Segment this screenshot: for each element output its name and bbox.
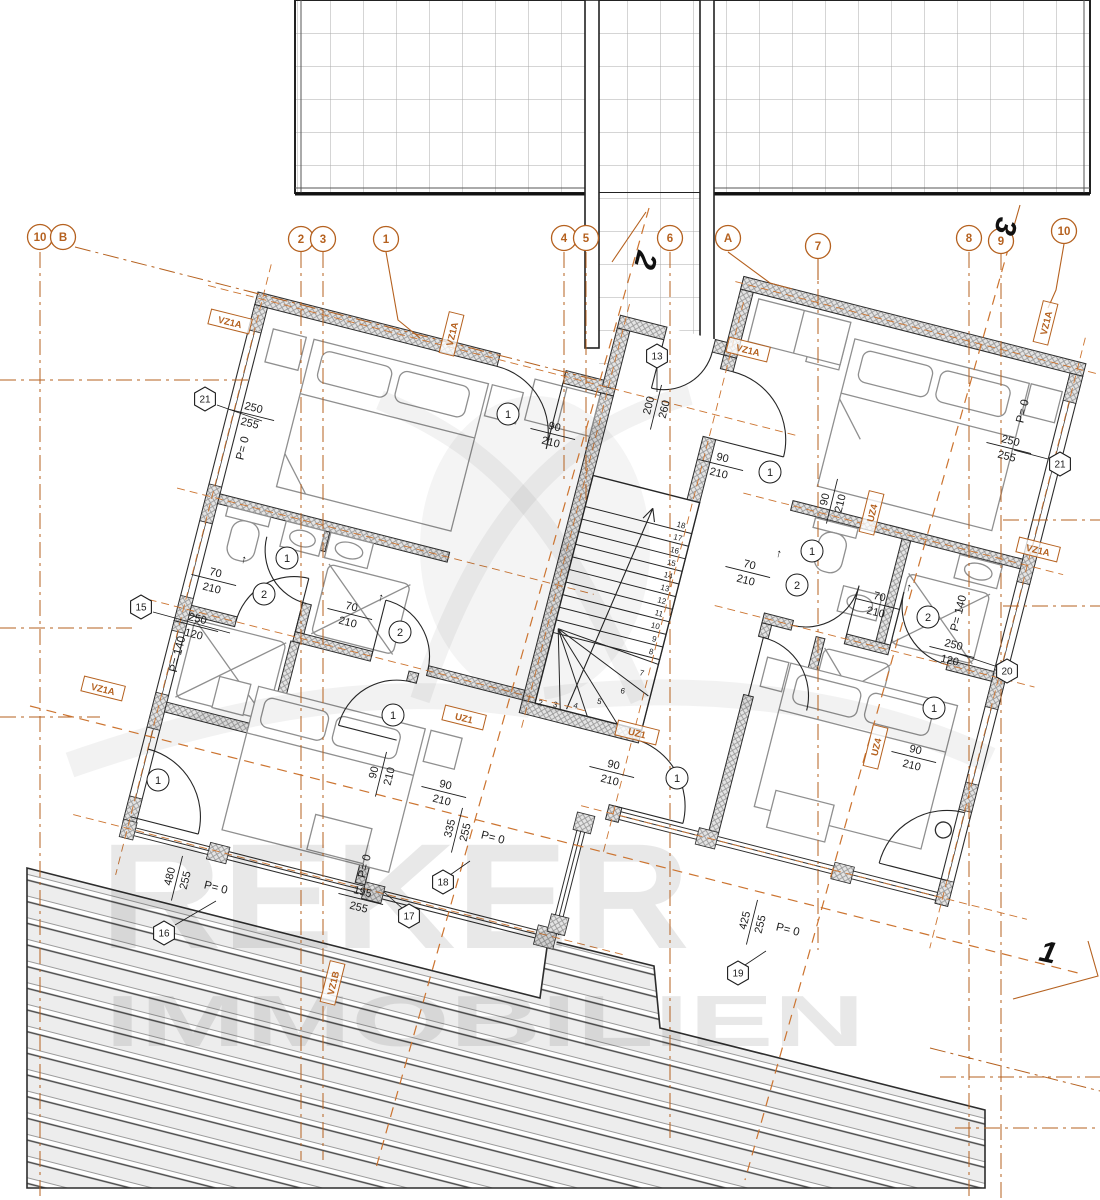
door-number-text: 1	[505, 409, 511, 421]
hex-marker-label: 13	[651, 352, 663, 363]
hex-marker-label: 18	[437, 878, 449, 889]
grid-axis-bubble: 8	[957, 226, 982, 251]
door-number-text: 1	[931, 703, 937, 715]
hex-marker-label: 16	[158, 929, 170, 940]
nightstand	[423, 730, 462, 769]
grid-axis-label: 4	[561, 233, 568, 245]
door-number-tag: 2	[253, 583, 275, 605]
hex-marker-label: 21	[1054, 460, 1066, 471]
grid-axis-bubble: 10	[1052, 219, 1077, 244]
grid-axis-bubble: 3	[311, 227, 336, 252]
grid-axis-bubble: 7	[806, 234, 831, 259]
grid-axis-label: 6	[667, 233, 673, 245]
door-number-text: 1	[284, 553, 290, 565]
hex-position-marker: 21	[1050, 452, 1071, 476]
grid-axis-label: 10	[34, 232, 47, 244]
hex-marker-label: 21	[199, 395, 211, 406]
watermark-text-2: IMMOBILIEN	[105, 982, 865, 1062]
door-number-tag: 2	[917, 606, 939, 628]
hex-position-marker: 20	[997, 659, 1018, 683]
grid-axis-label: 10	[1058, 226, 1071, 238]
grid-axis-label: 1	[383, 234, 390, 246]
door-number-tag: 1	[147, 769, 169, 791]
door-number-text: 1	[390, 710, 396, 722]
door-number-text: 2	[925, 612, 931, 624]
floor-plan-canvas: 18171615141312111098765432	[0, 0, 1100, 1200]
grid-axis-label: 3	[320, 234, 326, 246]
door-number-text: 2	[397, 627, 403, 639]
grid-axis-bubble: 6	[658, 226, 683, 251]
door-number-tag: 1	[666, 767, 688, 789]
grid-axis-label: B	[59, 232, 67, 244]
hex-position-marker: 21	[195, 387, 216, 411]
hex-position-marker: 19	[728, 961, 749, 985]
grid-axis-label: 9	[998, 236, 1004, 248]
nightstand	[265, 329, 306, 370]
grid-axis-label: 5	[583, 233, 590, 245]
walkway-wall-right	[700, 0, 714, 352]
hex-position-marker: 17	[399, 904, 420, 928]
door-number-text: 1	[674, 773, 680, 785]
grid-axis-bubble: B	[51, 225, 76, 250]
grid-axis-label: A	[724, 233, 732, 245]
hex-marker-label: 17	[403, 912, 415, 923]
grid-axis-bubble: A	[716, 226, 741, 251]
hex-position-marker: 18	[433, 870, 454, 894]
door-number-tag: 2	[786, 574, 808, 596]
door-number-tag: 1	[382, 704, 404, 726]
floor-plan-drawing: 18171615141312111098765432	[0, 0, 1100, 1200]
hex-position-marker: 16	[154, 921, 175, 945]
door-number-tag: 1	[801, 540, 823, 562]
grid-axis-label: 2	[298, 234, 304, 246]
door-number-tag: 1	[497, 403, 519, 425]
door-number-text: 1	[809, 546, 815, 558]
door-number-text: 2	[261, 589, 267, 601]
door-number-tag: 1	[276, 547, 298, 569]
door-number-text: 1	[155, 775, 161, 787]
hex-marker-label: 15	[135, 603, 147, 614]
door-number-tag: 1	[759, 461, 781, 483]
walkway-wall-left	[585, 0, 599, 348]
grid-axis-bubble: 5	[574, 226, 599, 251]
door-number-text: 1	[767, 467, 773, 479]
grid-axis-bubble: 10	[28, 225, 53, 250]
grid-axis-label: 8	[966, 233, 973, 245]
grid-axis-bubble: 1	[374, 227, 399, 252]
grid-axis-bubble: 4	[552, 226, 577, 251]
hex-position-marker: 13	[647, 344, 668, 368]
door-number-tag: 1	[923, 697, 945, 719]
hex-position-marker: 15	[131, 595, 152, 619]
grid-axis-label: 7	[815, 241, 821, 253]
watermark-text-1: REKER	[100, 812, 690, 980]
door-number-tag: 2	[389, 621, 411, 643]
roof-grid	[295, 0, 1090, 194]
hex-marker-label: 20	[1001, 667, 1013, 678]
door-number-text: 2	[794, 580, 800, 592]
hex-marker-label: 19	[732, 969, 744, 980]
grid-axis-bubble: 2	[289, 227, 314, 252]
